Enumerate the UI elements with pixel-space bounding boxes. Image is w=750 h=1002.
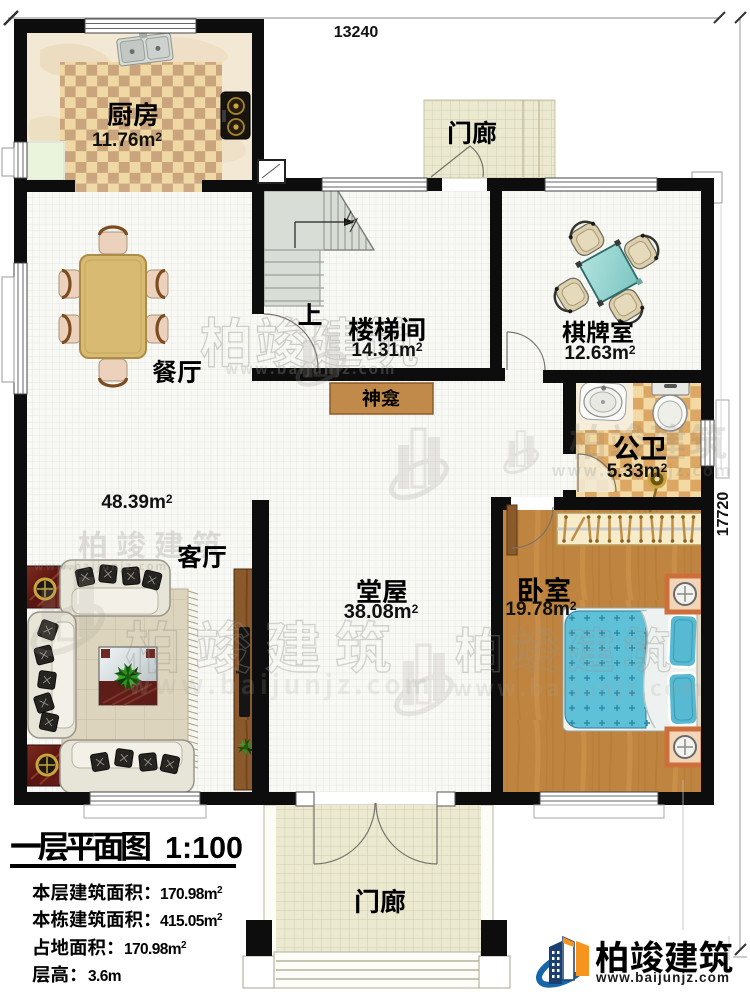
svg-text:12.63m2: 12.63m2 [564,343,635,364]
svg-text:5.33m2: 5.33m2 [607,461,668,482]
svg-text:11.76m2: 11.76m2 [92,130,162,151]
svg-text:17720: 17720 [715,492,732,537]
svg-text:14.31m2: 14.31m2 [351,340,422,361]
svg-text:19.78m2: 19.78m2 [505,599,576,620]
svg-text:www.baijunjz.com: www.baijunjz.com [595,970,730,985]
svg-text:415.05m2: 415.05m2 [160,912,223,930]
svg-text:1:100: 1:100 [165,831,243,865]
svg-text:3.6m: 3.6m [88,968,121,985]
svg-text:170.98m2: 170.98m2 [124,940,187,958]
svg-text:38.08m2: 38.08m2 [344,601,419,623]
svg-text:48.39m2: 48.39m2 [101,492,172,513]
svg-text:13240: 13240 [334,24,379,41]
svg-text:170.98m2: 170.98m2 [160,885,223,903]
